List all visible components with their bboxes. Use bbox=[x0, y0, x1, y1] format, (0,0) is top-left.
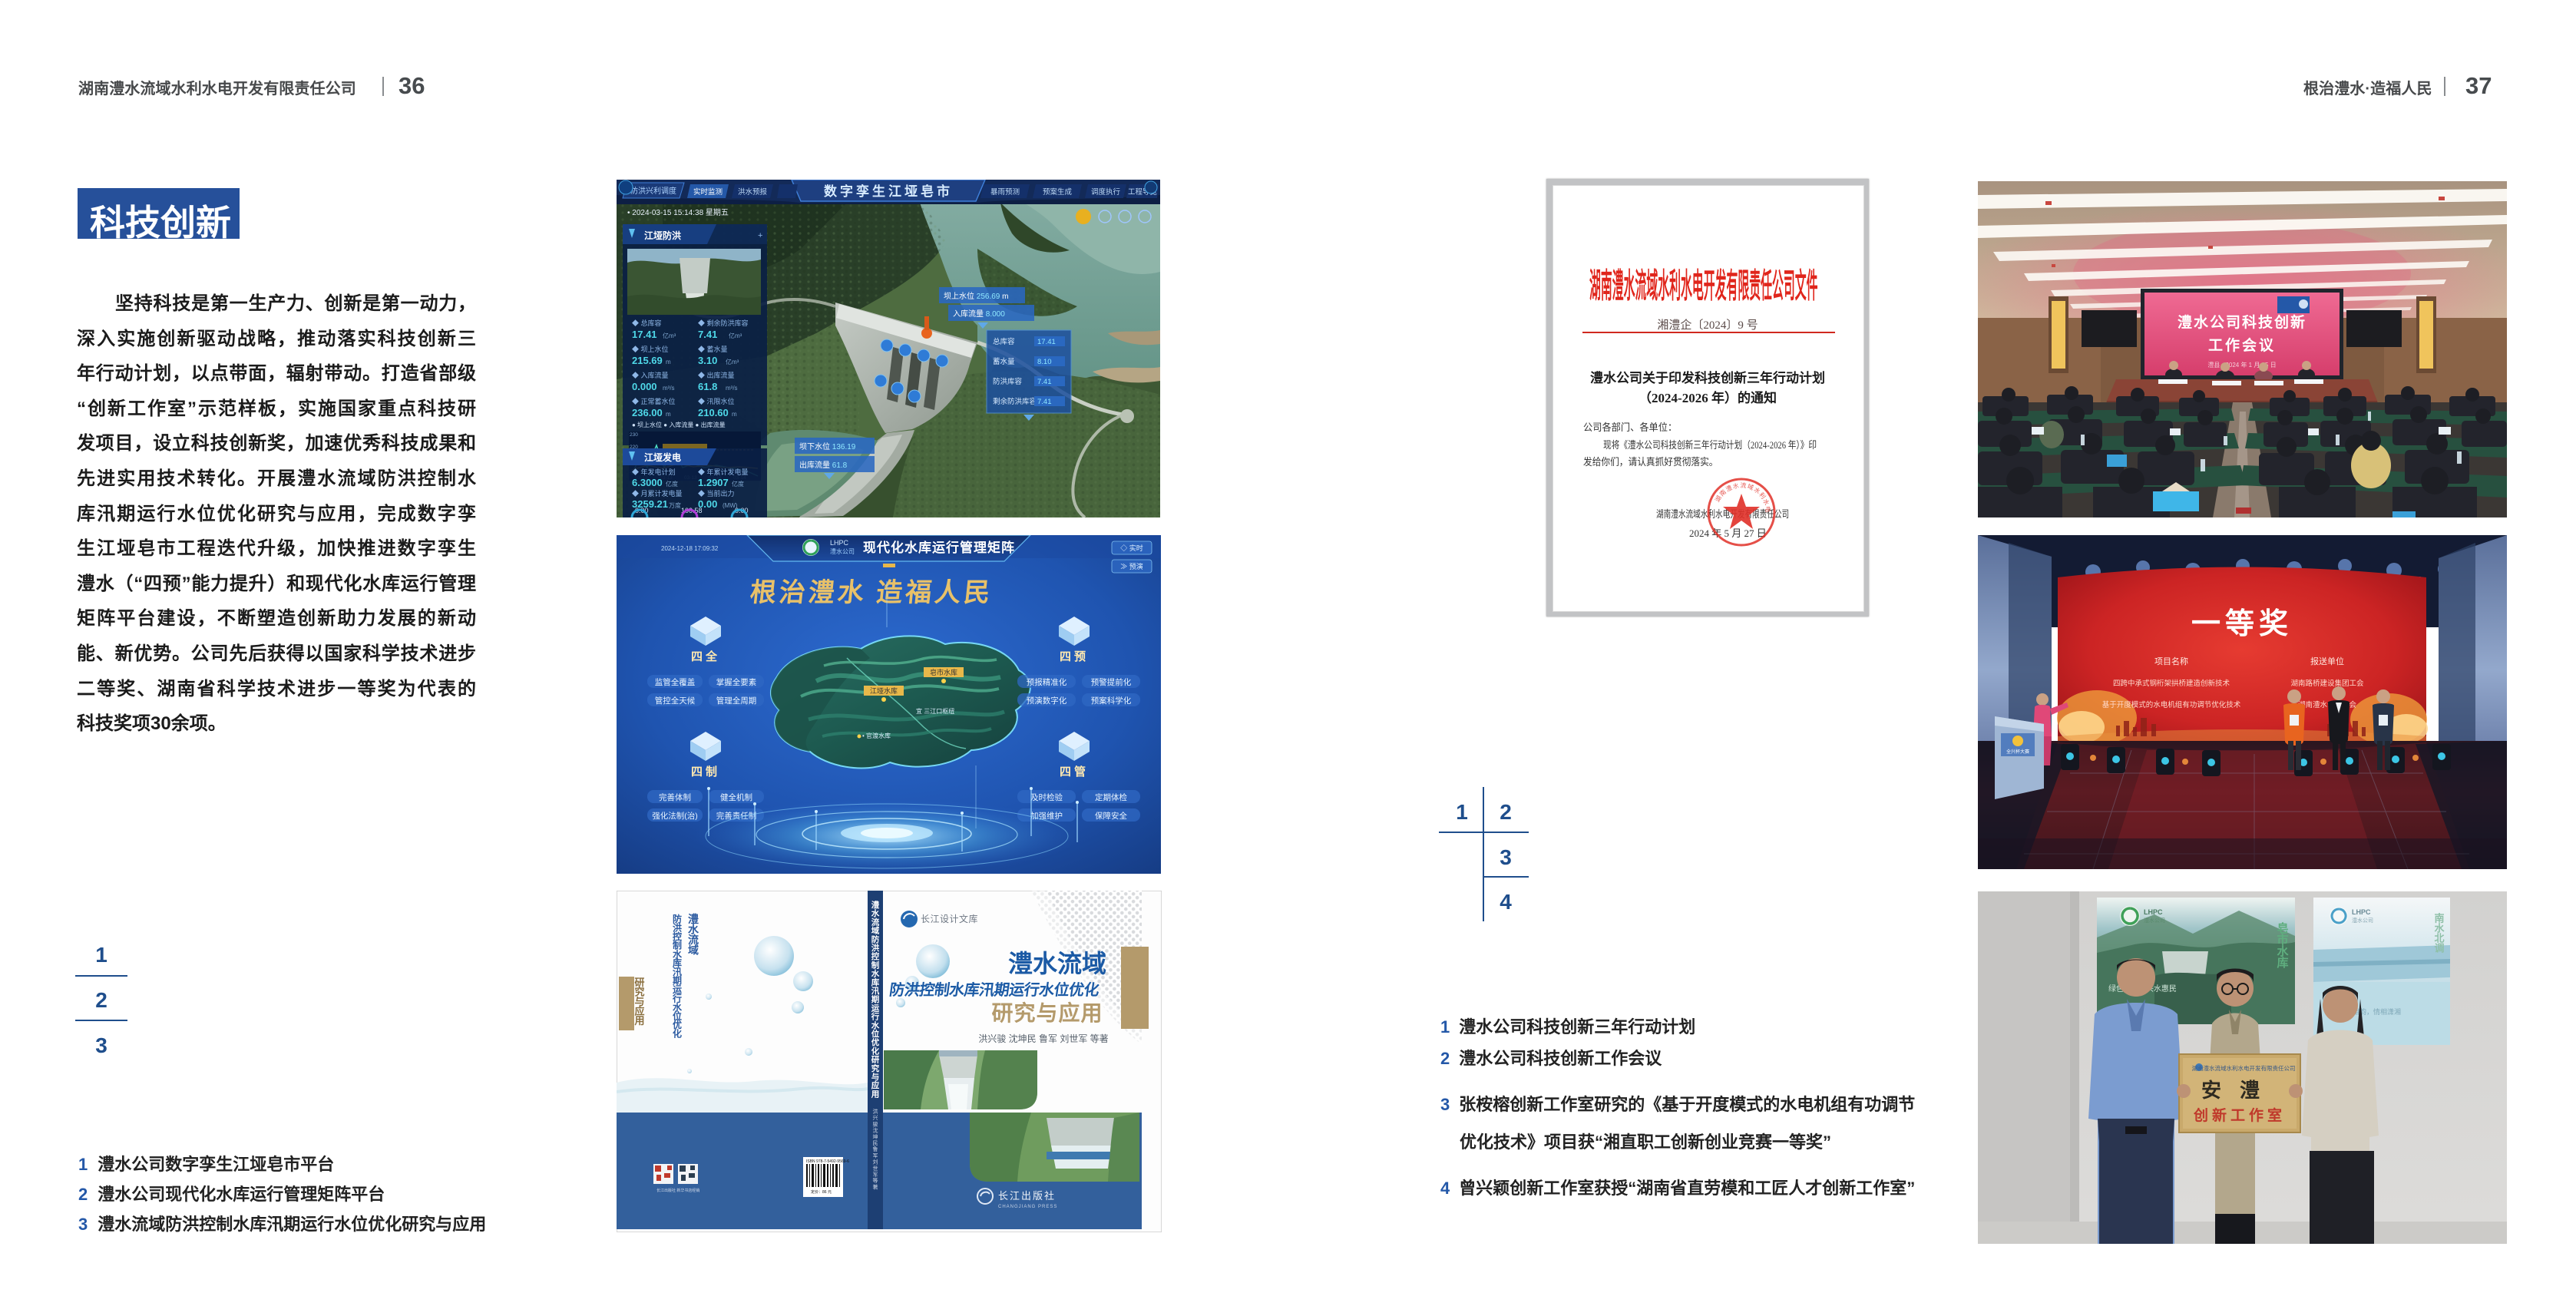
svg-text:m³/s: m³/s bbox=[726, 385, 738, 392]
svg-text:一等奖: 一等奖 bbox=[2191, 608, 2293, 640]
svg-text:强化法制(治): 强化法制(治) bbox=[652, 811, 698, 821]
svg-text:230: 230 bbox=[630, 432, 638, 438]
svg-text:• 2024-03-15 15:14:38 星期五: • 2024-03-15 15:14:38 星期五 bbox=[627, 208, 729, 217]
svg-text:坝下水位 136.19: 坝下水位 136.19 bbox=[799, 441, 856, 451]
svg-text:水: 水 bbox=[1732, 481, 1740, 490]
svg-text:2024-12-18 17:09:32: 2024-12-18 17:09:32 bbox=[661, 545, 719, 552]
svg-text:3.10: 3.10 bbox=[698, 355, 717, 366]
svg-text:报送单位: 报送单位 bbox=[2310, 656, 2344, 666]
svg-text:236.00: 236.00 bbox=[632, 407, 663, 418]
svg-text:+: + bbox=[758, 231, 762, 240]
svg-text:澧水公司: 澧水公司 bbox=[830, 547, 855, 555]
svg-text:健全机制: 健全机制 bbox=[720, 792, 752, 802]
svg-text:宜 三江口枢纽: 宜 三江口枢纽 bbox=[916, 707, 954, 715]
svg-text:防: 防 bbox=[871, 934, 880, 944]
svg-text:◆ 入库流量: ◆ 入库流量 bbox=[632, 371, 669, 379]
svg-text:用: 用 bbox=[871, 1089, 880, 1099]
svg-text:澧水公司: 澧水公司 bbox=[2352, 917, 2373, 924]
svg-text:◆ 当前出力: ◆ 当前出力 bbox=[698, 489, 735, 498]
svg-text:世: 世 bbox=[873, 1165, 878, 1172]
svg-text:0.000: 0.000 bbox=[632, 381, 657, 392]
svg-text:亿m³: 亿m³ bbox=[729, 332, 742, 339]
svg-text:7.41: 7.41 bbox=[698, 329, 717, 340]
svg-text:◆ 正常蓄水位: ◆ 正常蓄水位 bbox=[632, 397, 676, 405]
svg-text:水: 水 bbox=[871, 969, 880, 979]
svg-text:湖南路桥建设集团工会: 湖南路桥建设集团工会 bbox=[2290, 679, 2364, 688]
svg-text:总库容: 总库容 bbox=[993, 337, 1015, 346]
svg-text:运: 运 bbox=[871, 1003, 880, 1013]
svg-text:预演数字化: 预演数字化 bbox=[1027, 696, 1067, 706]
svg-text:入库流量 8.000: 入库流量 8.000 bbox=[953, 309, 1005, 319]
svg-text:洪兴骏 沈坤民 鲁军 刘世军 等著: 洪兴骏 沈坤民 鲁军 刘世军 等著 bbox=[978, 1033, 1108, 1044]
svg-text:8.10: 8.10 bbox=[1037, 358, 1052, 366]
svg-text:预报精准化: 预报精准化 bbox=[1027, 677, 1067, 687]
svg-text:m: m bbox=[666, 359, 671, 365]
svg-text:监管全覆盖: 监管全覆盖 bbox=[655, 677, 696, 687]
svg-text:电: 电 bbox=[1764, 506, 1772, 513]
svg-text:出库流量 61.8: 出库流量 61.8 bbox=[799, 460, 848, 470]
svg-text:工作会议: 工作会议 bbox=[2208, 336, 2276, 354]
svg-text:预案生成: 预案生成 bbox=[1043, 187, 1073, 197]
svg-text:军: 军 bbox=[873, 1152, 878, 1159]
svg-text:著: 著 bbox=[873, 1183, 878, 1190]
svg-text:ISBN 978-7-5492-9569-6: ISBN 978-7-5492-9569-6 bbox=[806, 1159, 849, 1164]
svg-text:澧: 澧 bbox=[871, 900, 880, 910]
svg-text:四制: 四制 bbox=[691, 765, 720, 779]
svg-text:基于开度模式的水电机组有功调节优化技术: 基于开度模式的水电机组有功调节优化技术 bbox=[2102, 700, 2241, 709]
svg-text:澧水公司: 澧水公司 bbox=[2144, 917, 2165, 924]
svg-text:17.41: 17.41 bbox=[1037, 338, 1056, 346]
svg-text:◆ 出库流量: ◆ 出库流量 bbox=[698, 371, 735, 379]
svg-text:◆ 年累计发电量: ◆ 年累计发电量 bbox=[698, 468, 749, 476]
svg-text:定价：86 元: 定价：86 元 bbox=[811, 1189, 832, 1195]
svg-text:骏: 骏 bbox=[873, 1120, 878, 1127]
svg-text:用: 用 bbox=[633, 1015, 644, 1027]
svg-text:安澧: 安澧 bbox=[2201, 1079, 2278, 1102]
svg-text:剩余防洪库容: 剩余防洪库容 bbox=[993, 397, 1037, 406]
svg-text:防洪控制水库汛期运行水位优化: 防洪控制水库汛期运行水位优化 bbox=[888, 980, 1100, 999]
svg-text:江垭水库: 江垭水库 bbox=[870, 686, 898, 695]
svg-text:完善体制: 完善体制 bbox=[659, 792, 691, 802]
svg-text:水: 水 bbox=[871, 1020, 880, 1030]
svg-text:优: 优 bbox=[871, 1037, 880, 1047]
svg-text:长江出版社 新华书店经销: 长江出版社 新华书店经销 bbox=[656, 1188, 699, 1193]
svg-text:坝上水位 256.69 m: 坝上水位 256.69 m bbox=[944, 291, 1008, 301]
svg-text:7.41: 7.41 bbox=[1037, 378, 1052, 386]
svg-text:亿m³: 亿m³ bbox=[663, 332, 676, 339]
svg-text:四跨中承式钢桁架拱桥建造创新技术: 四跨中承式钢桁架拱桥建造创新技术 bbox=[2113, 679, 2230, 688]
svg-text:军: 军 bbox=[873, 1172, 878, 1178]
svg-text:域: 域 bbox=[688, 944, 699, 957]
svg-text:江垭发电: 江垭发电 bbox=[644, 451, 681, 463]
svg-text:调度执行: 调度执行 bbox=[1091, 187, 1121, 197]
svg-text:皂市水库: 皂市水库 bbox=[2276, 921, 2289, 969]
svg-text:现代化水库运行管理矩阵: 现代化水库运行管理矩阵 bbox=[863, 540, 1015, 555]
svg-text:215.69: 215.69 bbox=[632, 355, 663, 366]
svg-text:行: 行 bbox=[871, 1012, 880, 1022]
svg-text:创新工作室: 创新工作室 bbox=[2193, 1106, 2286, 1124]
svg-text:南水北调: 南水北调 bbox=[2433, 912, 2445, 954]
svg-text:域: 域 bbox=[871, 926, 880, 936]
svg-text:◆ 坝上水位: ◆ 坝上水位 bbox=[632, 345, 669, 353]
svg-text:预警提前化: 预警提前化 bbox=[1091, 677, 1132, 687]
svg-text:流: 流 bbox=[871, 917, 880, 927]
svg-text:≫ 预演: ≫ 预演 bbox=[1120, 562, 1143, 570]
svg-text:◇ 实时: ◇ 实时 bbox=[1120, 544, 1143, 552]
svg-text:掌握全要素: 掌握全要素 bbox=[716, 677, 757, 687]
svg-text:1.2907: 1.2907 bbox=[698, 477, 729, 488]
svg-text:洪: 洪 bbox=[873, 1108, 878, 1115]
svg-text:究: 究 bbox=[871, 1063, 880, 1073]
svg-text:皂市水库: 皂市水库 bbox=[930, 668, 957, 676]
svg-text:数字孪生江垭皂市: 数字孪生江垭皂市 bbox=[824, 184, 953, 199]
svg-text:兴: 兴 bbox=[873, 1114, 878, 1121]
svg-text:蓄水量: 蓄水量 bbox=[993, 357, 1015, 366]
svg-text:CHANGJIANG PRESS: CHANGJIANG PRESS bbox=[998, 1205, 1057, 1209]
svg-text:洪水预报: 洪水预报 bbox=[738, 187, 768, 197]
svg-text:研: 研 bbox=[871, 1056, 880, 1065]
svg-text:保障安全: 保障安全 bbox=[1095, 811, 1127, 821]
svg-text:与: 与 bbox=[871, 1072, 880, 1082]
svg-text:位: 位 bbox=[871, 1029, 880, 1039]
svg-text:亿m³: 亿m³ bbox=[726, 358, 739, 365]
svg-text:LHPC: LHPC bbox=[2144, 908, 2163, 916]
svg-text:长江设计文库: 长江设计文库 bbox=[921, 913, 978, 924]
svg-text:根治澧水 造福人民: 根治澧水 造福人民 bbox=[749, 578, 994, 607]
svg-text:● 坝上水位 ● 入库流量 ● 出库流量: ● 坝上水位 ● 入库流量 ● 出库流量 bbox=[632, 421, 726, 428]
svg-text:汛: 汛 bbox=[871, 986, 880, 996]
svg-text:◆ 年发电计划: ◆ 年发电计划 bbox=[632, 468, 676, 476]
svg-text:预案科学化: 预案科学化 bbox=[1091, 696, 1132, 706]
svg-text:坤: 坤 bbox=[873, 1133, 878, 1140]
svg-text:四管: 四管 bbox=[1060, 765, 1089, 779]
svg-text:化: 化 bbox=[871, 1046, 880, 1056]
svg-text:m³/s: m³/s bbox=[663, 385, 675, 392]
svg-text:防洪库容: 防洪库容 bbox=[993, 377, 1023, 386]
svg-text:鲁: 鲁 bbox=[873, 1146, 878, 1152]
svg-text:m: m bbox=[666, 411, 671, 418]
svg-text:暴雨预测: 暴雨预测 bbox=[990, 188, 1020, 197]
svg-text:澧水流域: 澧水流域 bbox=[1008, 950, 1106, 977]
svg-text:沈: 沈 bbox=[873, 1127, 878, 1134]
svg-text:等: 等 bbox=[873, 1177, 878, 1184]
svg-text:流: 流 bbox=[1740, 481, 1747, 490]
svg-text:亿度: 亿度 bbox=[732, 480, 744, 488]
svg-text:制: 制 bbox=[871, 960, 880, 970]
svg-text:控: 控 bbox=[871, 951, 880, 961]
svg-text:实时监测: 实时监测 bbox=[693, 187, 723, 197]
svg-text:四预: 四预 bbox=[1060, 650, 1089, 663]
svg-text:管控全天候: 管控全天候 bbox=[655, 696, 696, 706]
svg-text:民: 民 bbox=[873, 1140, 878, 1146]
svg-text:亿度: 亿度 bbox=[666, 480, 678, 488]
svg-text:四全: 四全 bbox=[691, 650, 720, 663]
svg-text:澧水公司科技创新: 澧水公司科技创新 bbox=[2178, 313, 2306, 331]
svg-text:17.41: 17.41 bbox=[632, 329, 657, 340]
svg-text:期: 期 bbox=[871, 994, 880, 1004]
svg-text:研究与应用: 研究与应用 bbox=[991, 1000, 1103, 1025]
svg-text:刘: 刘 bbox=[873, 1159, 878, 1165]
svg-text:万度: 万度 bbox=[669, 501, 681, 509]
svg-text:及时检验: 及时检验 bbox=[1030, 792, 1063, 802]
svg-text:管理全周期: 管理全周期 bbox=[716, 696, 757, 706]
svg-text:全兴杯大赛: 全兴杯大赛 bbox=[2006, 749, 2029, 755]
svg-text:m: m bbox=[732, 411, 737, 418]
svg-text:7.41: 7.41 bbox=[1037, 398, 1052, 406]
svg-text:湖南澧水流域水利水电开发有限责任公司: 湖南澧水流域水利水电开发有限责任公司 bbox=[2192, 1064, 2296, 1072]
svg-text:61.8: 61.8 bbox=[698, 381, 717, 392]
svg-text:LHPC: LHPC bbox=[2352, 908, 2371, 916]
svg-text:◆ 剩余防洪库容: ◆ 剩余防洪库容 bbox=[698, 319, 749, 327]
svg-text:防洪兴利调度: 防洪兴利调度 bbox=[630, 186, 676, 196]
svg-text:定期体检: 定期体检 bbox=[1095, 792, 1127, 802]
svg-text:◆ 月累计发电量: ◆ 月累计发电量 bbox=[632, 489, 683, 498]
svg-text:水: 水 bbox=[871, 908, 880, 918]
svg-text:长江出版社: 长江出版社 bbox=[998, 1190, 1056, 1202]
svg-text:LHPC: LHPC bbox=[830, 539, 849, 547]
svg-text:210.60: 210.60 bbox=[698, 407, 729, 418]
svg-text:项目名称: 项目名称 bbox=[2154, 656, 2188, 666]
svg-text:洪: 洪 bbox=[871, 943, 880, 953]
svg-text:• 官渡水库: • 官渡水库 bbox=[862, 732, 891, 739]
svg-text:6.3000: 6.3000 bbox=[632, 477, 663, 488]
svg-text:◆ 蓄水量: ◆ 蓄水量 bbox=[698, 345, 728, 353]
svg-text:库: 库 bbox=[871, 977, 880, 987]
svg-text:江垭防洪: 江垭防洪 bbox=[644, 230, 681, 241]
svg-text:◆ 总库容: ◆ 总库容 bbox=[632, 319, 662, 327]
svg-text:◆ 汛限水位: ◆ 汛限水位 bbox=[698, 397, 735, 405]
svg-text:化: 化 bbox=[673, 1028, 682, 1040]
svg-text:应: 应 bbox=[871, 1080, 880, 1090]
